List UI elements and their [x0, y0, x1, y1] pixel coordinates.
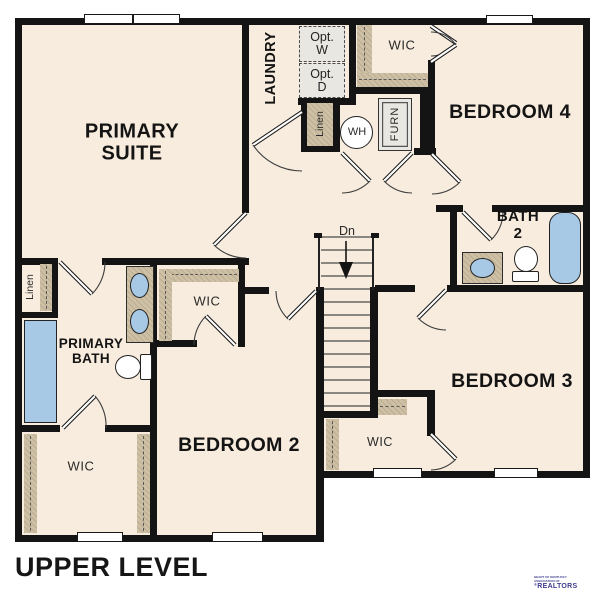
room-label-primary-suite: PRIMARY SUITE [85, 121, 179, 166]
room-label-linen-bath: Linen [24, 274, 36, 300]
door-swing [431, 434, 456, 470]
room-label-wic-hall: WIC [388, 38, 415, 53]
doors-and-stairs-layer [0, 0, 600, 600]
door-swing [253, 112, 302, 171]
logo-realtors-label: ®REALTORS [534, 583, 600, 590]
door-swing [418, 290, 446, 330]
room-label-line: SUITE [85, 143, 179, 165]
room-label-wic-bedroom2: WIC [193, 294, 220, 309]
water-heater-label: WH [348, 126, 366, 138]
door-swing [432, 154, 460, 194]
brand-logo: KY HEART OF KENTUCKY ASSOCIATION OF ®REA… [533, 566, 595, 599]
logo-org-line1: HEART OF KENTUCKY [534, 576, 567, 578]
room-label-primary-bath: PRIMARY BATH [59, 336, 124, 366]
plan-title: UPPER LEVEL [15, 552, 208, 583]
logo-text-block: HEART OF KENTUCKY ASSOCIATION OF ®REALTO… [534, 575, 600, 590]
room-label-line: BATH [59, 351, 124, 366]
room-label-wic-bedroom3: WIC [367, 435, 393, 449]
door-swing [194, 316, 235, 345]
room-label-wic-primary: WIC [67, 459, 94, 474]
door-swing [276, 291, 316, 319]
room-label-bedroom-3: BEDROOM 3 [451, 371, 573, 393]
room-label-line: PRIMARY [85, 121, 179, 143]
room-label-line: 2 [497, 226, 539, 243]
room-label-linen-hall: Linen [314, 111, 326, 137]
room-label-line: BATH [497, 209, 539, 226]
door-swing [384, 153, 412, 193]
furnace-label: FURN [389, 107, 401, 142]
door-swing [63, 396, 106, 428]
door-swing [60, 262, 105, 294]
staircase [314, 233, 379, 406]
realtors-text: REALTORS [537, 583, 577, 590]
stairs-direction-label: Dn [339, 224, 355, 238]
logo-org-line2: ASSOCIATION OF [534, 580, 567, 582]
room-label-bedroom-4: BEDROOM 4 [449, 102, 571, 124]
room-label-bedroom-2: BEDROOM 2 [178, 435, 300, 457]
door-swing [214, 213, 246, 258]
stairs-down-arrow [339, 241, 353, 279]
room-label-laundry: LAUNDRY [263, 31, 279, 104]
room-label-line: PRIMARY [59, 336, 124, 351]
door-swing [342, 153, 370, 193]
room-label-bath-2: BATH 2 [497, 209, 539, 243]
floor-plan: Opt. W Opt. D [0, 0, 600, 600]
